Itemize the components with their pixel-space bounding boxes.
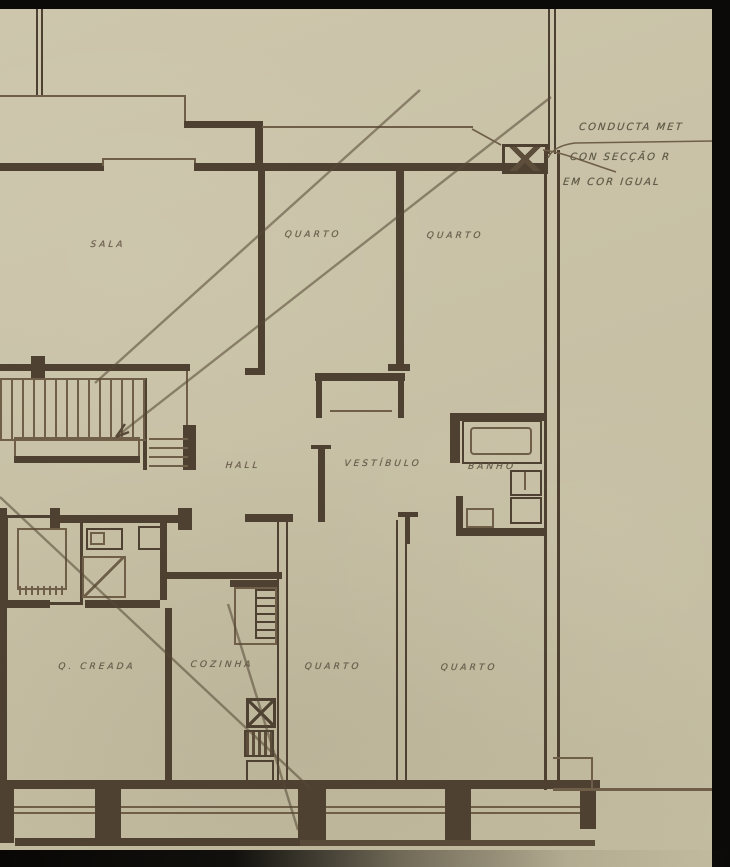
wall-segment bbox=[0, 364, 190, 371]
window-sill bbox=[14, 806, 95, 808]
room-label-quarto-upper-left: QUARTO bbox=[284, 230, 342, 240]
facade-pier bbox=[0, 789, 14, 843]
window-sill bbox=[326, 812, 445, 814]
window-sill bbox=[14, 812, 95, 814]
facade-base bbox=[15, 838, 300, 846]
washbasin bbox=[510, 497, 542, 524]
stove bbox=[244, 730, 274, 757]
window-sill bbox=[121, 806, 298, 808]
facade-pier bbox=[580, 789, 596, 829]
banho-wall-left bbox=[450, 413, 460, 463]
wc-wall bbox=[456, 528, 546, 536]
wall-pier bbox=[178, 508, 192, 530]
parapet-line bbox=[553, 788, 713, 791]
parapet-line bbox=[184, 95, 186, 124]
room-label-cozinha: COZINHA bbox=[190, 660, 254, 670]
wall-segment bbox=[548, 9, 556, 154]
window-bay-line bbox=[102, 158, 104, 166]
scan-edge-right bbox=[712, 0, 730, 867]
stair-treads bbox=[0, 378, 146, 441]
window-sill bbox=[471, 806, 580, 808]
closet-front bbox=[330, 410, 392, 412]
floor-plan-scan: SALA QUARTO QUARTO HALL VESTÍBULO BANHO … bbox=[0, 0, 730, 867]
kitchen-shelves bbox=[255, 589, 275, 639]
wall-segment bbox=[36, 9, 43, 96]
wall-hall-vestibulo bbox=[318, 448, 325, 522]
scan-edge-top bbox=[0, 0, 730, 9]
facade-pier bbox=[298, 789, 326, 843]
window-bay-line bbox=[102, 158, 196, 160]
wall-foot bbox=[245, 368, 265, 375]
annotation-line-2: CON SECÇÃO R bbox=[569, 152, 671, 163]
wall-pier bbox=[31, 356, 45, 380]
wall-sala-quarto bbox=[258, 171, 265, 374]
parapet-wall bbox=[184, 121, 263, 128]
shower-tray bbox=[82, 556, 126, 598]
dumbwaiter bbox=[246, 698, 276, 728]
wall-quarto-quarto-lower bbox=[396, 520, 407, 788]
exterior-wall-bottom bbox=[0, 780, 600, 789]
exterior-wall-top bbox=[194, 163, 545, 171]
window-sill bbox=[326, 806, 445, 808]
facade-pier bbox=[95, 789, 121, 843]
wall-segment bbox=[85, 600, 160, 608]
basin-inner bbox=[90, 532, 105, 545]
exterior-wall-right bbox=[544, 150, 560, 790]
annotation-line-1: CONDUCTA MET bbox=[578, 122, 684, 133]
cozinha-wall-top bbox=[160, 572, 282, 579]
room-label-sala: SALA bbox=[90, 240, 126, 250]
parapet-line bbox=[591, 757, 593, 790]
parapet-line bbox=[262, 126, 473, 128]
wall-cozinha-quarto bbox=[277, 518, 288, 788]
room-label-quarto-lower-right: QUARTO bbox=[440, 663, 498, 673]
wall-segment bbox=[160, 515, 167, 600]
wall-creada-cozinha bbox=[165, 608, 172, 788]
window-sill bbox=[121, 812, 298, 814]
closet-wall bbox=[398, 381, 404, 418]
wall-segment bbox=[186, 371, 188, 425]
room-label-quarto-upper-right: QUARTO bbox=[426, 231, 484, 241]
duct-leader bbox=[472, 129, 501, 145]
counter-edge bbox=[230, 580, 277, 587]
small-fixture bbox=[138, 526, 162, 550]
stair-winders bbox=[149, 438, 188, 468]
wc-wall bbox=[456, 496, 463, 532]
wall-foot bbox=[388, 364, 410, 371]
parapet-line bbox=[0, 95, 186, 97]
wc-fixture bbox=[466, 508, 494, 528]
wall-segment bbox=[0, 600, 50, 608]
window-sill bbox=[471, 812, 580, 814]
parapet-line bbox=[553, 757, 593, 759]
room-label-quarto-creada: Q. CREADA bbox=[58, 662, 136, 672]
facade-base bbox=[300, 840, 595, 846]
facade-pier bbox=[445, 789, 471, 843]
lift-sill-hatch bbox=[19, 586, 63, 595]
stair-landing-edge bbox=[14, 456, 140, 463]
closet-wall bbox=[316, 381, 322, 418]
washbasin bbox=[510, 470, 542, 496]
wall-cap bbox=[311, 445, 331, 449]
lift-cab bbox=[17, 528, 67, 590]
room-label-banho: BANHO bbox=[468, 462, 517, 472]
closet-wall bbox=[315, 373, 405, 381]
room-label-quarto-lower-left: QUARTO bbox=[304, 662, 362, 672]
washbasin-divider bbox=[524, 472, 526, 490]
duct-symbol bbox=[502, 144, 548, 174]
wall-quarto-quarto bbox=[396, 171, 404, 371]
exterior-wall-top bbox=[0, 163, 104, 171]
strike-line bbox=[116, 97, 551, 437]
scan-edge-bottom bbox=[0, 850, 730, 867]
room-label-hall: HALL bbox=[225, 461, 261, 471]
annotation-line-3: EM COR IGUAL bbox=[562, 177, 661, 188]
room-label-vestibulo: VESTÍBULO bbox=[344, 459, 422, 469]
bathtub-inner bbox=[470, 427, 532, 455]
